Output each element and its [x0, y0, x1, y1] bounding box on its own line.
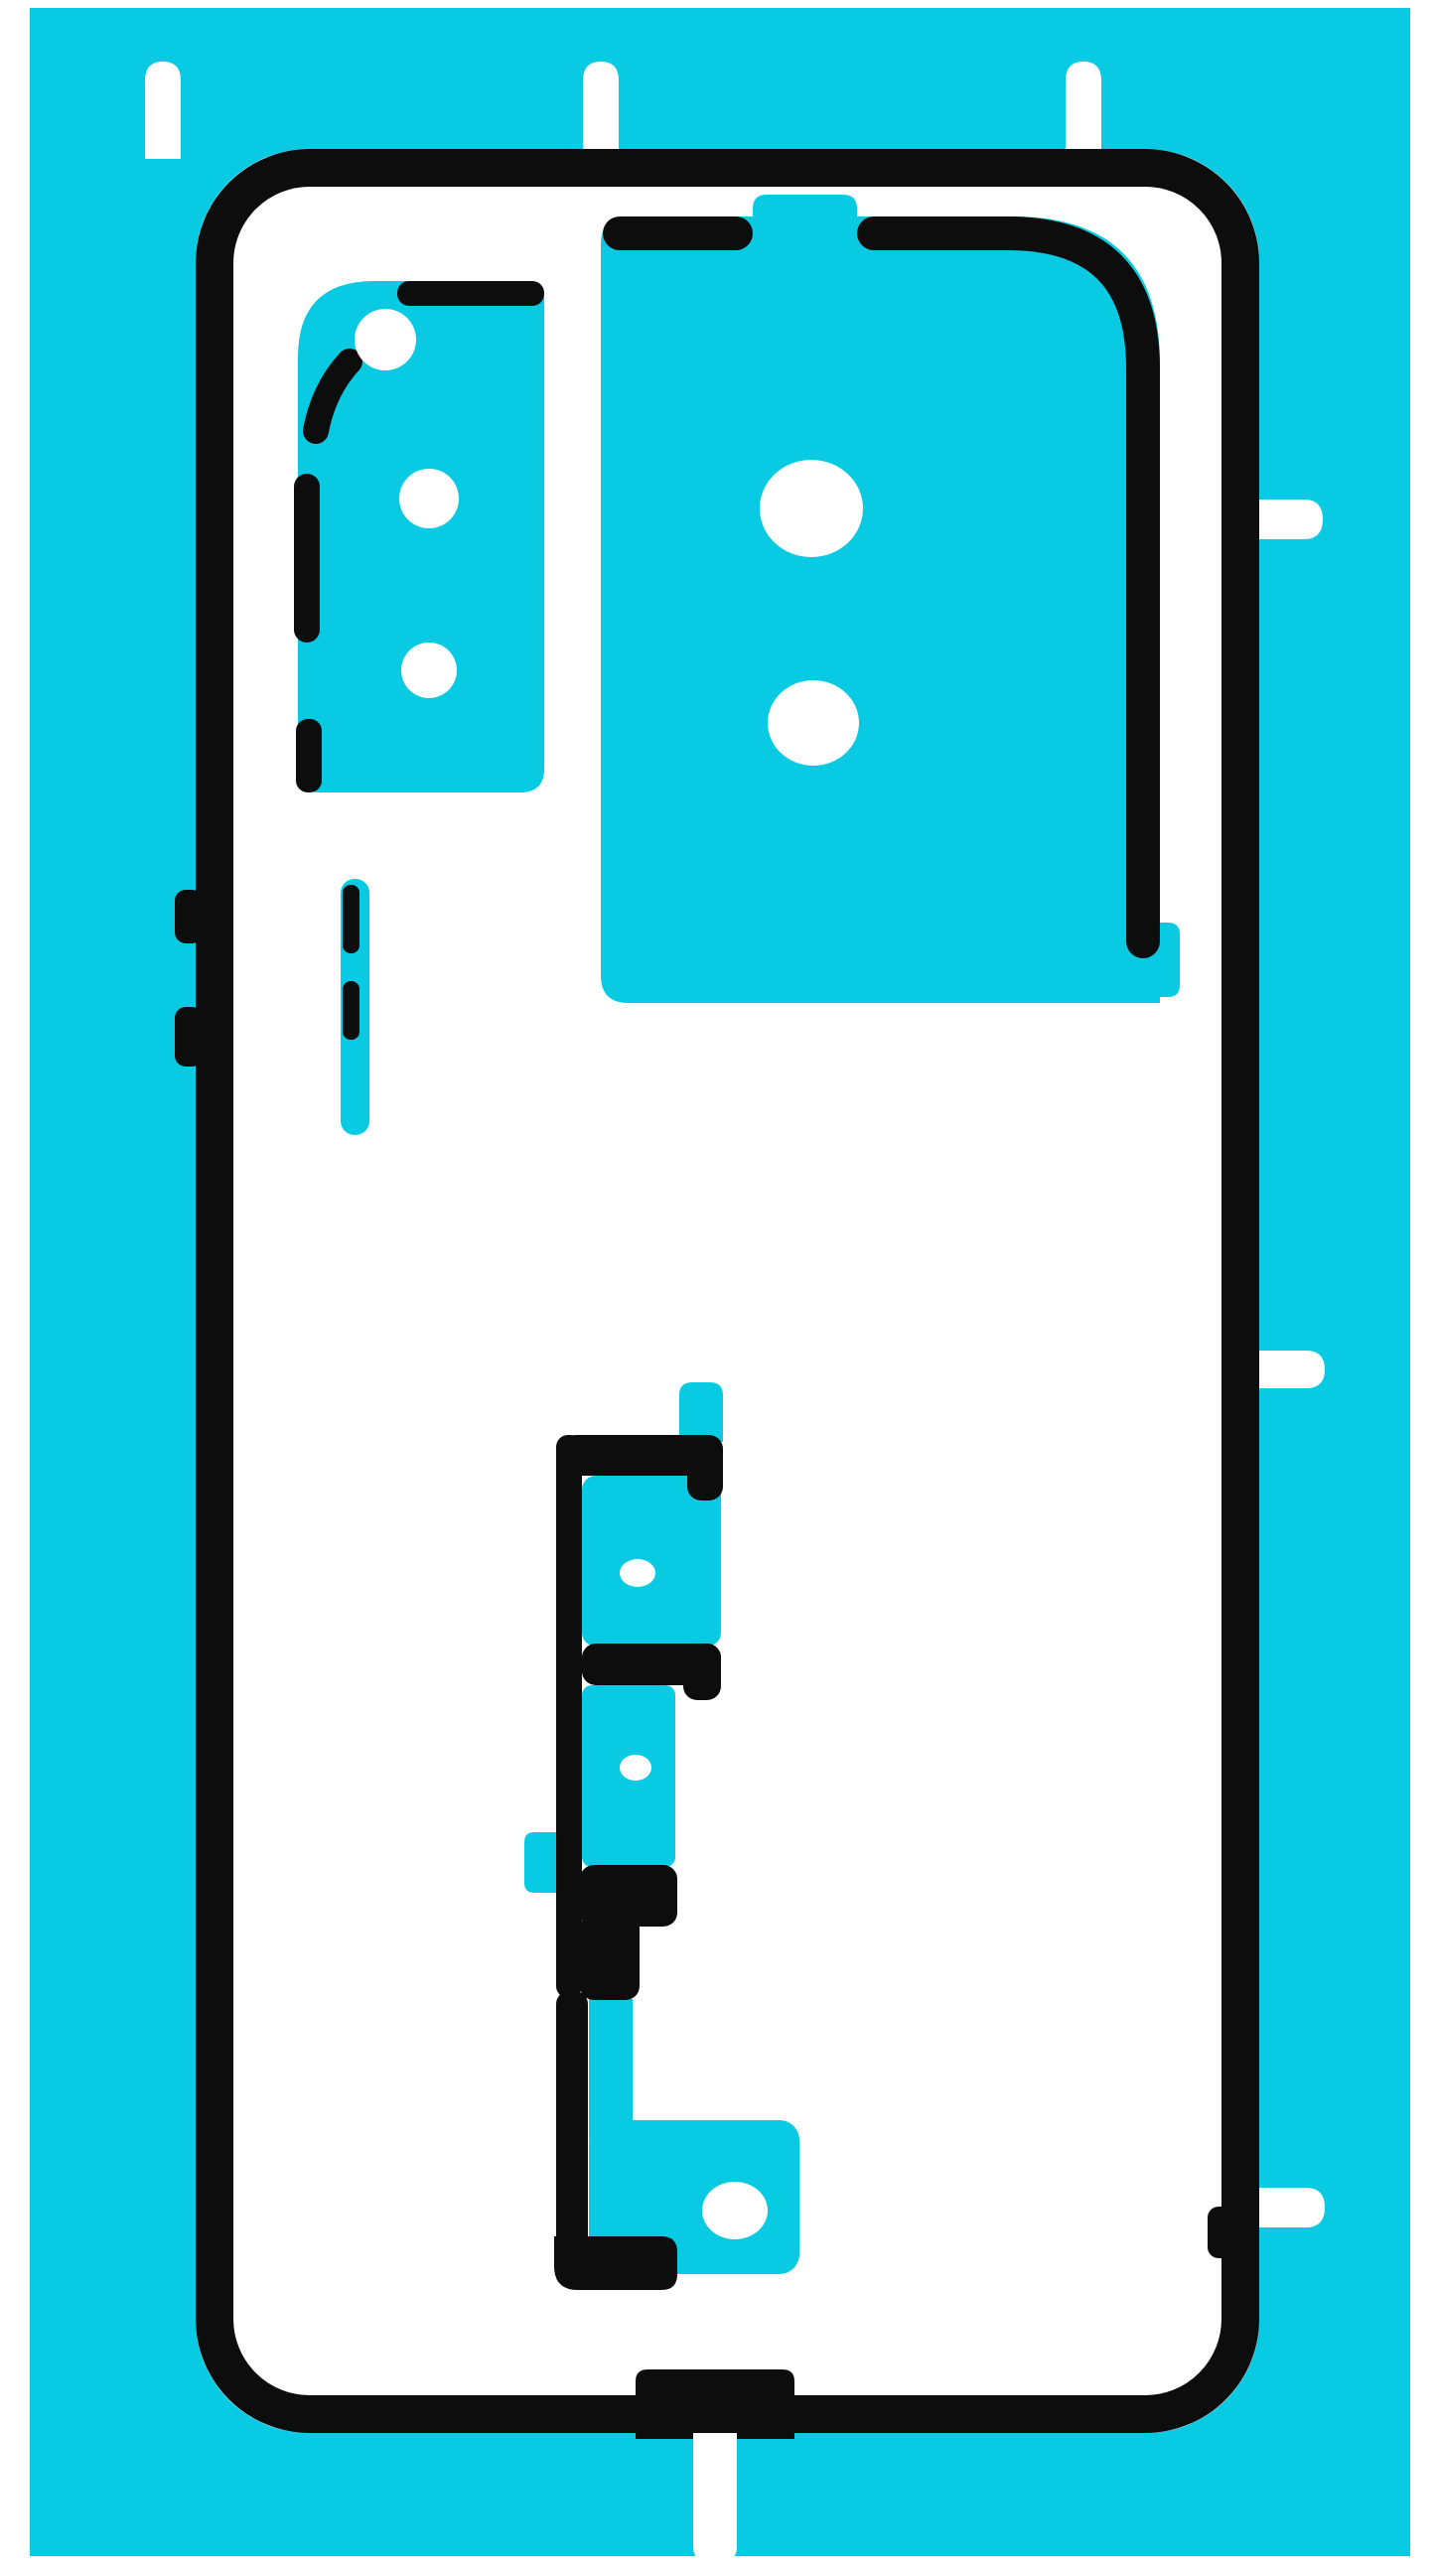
battery-top-tab	[679, 1382, 723, 1442]
battery-slab-column	[589, 1999, 633, 2138]
volume-strip-mark-2	[343, 981, 359, 1040]
battery-frame-mid-bar-hook	[683, 1644, 721, 1700]
right-pull-tab-1	[1251, 500, 1323, 539]
camera-left-lens-hole-2	[401, 643, 457, 698]
camera-left-lens-hole-1	[399, 469, 459, 528]
right-pull-tab-3	[1251, 2188, 1325, 2227]
camera-left-border-dash-1	[397, 281, 544, 306]
battery-corner-bracket	[554, 2236, 677, 2290]
battery-zigzag-block-2	[580, 1915, 640, 2000]
camera-main-lens-hole-large	[760, 460, 863, 557]
battery-panel-mid-hole	[620, 1755, 651, 1781]
camera-main-lens-hole-small	[768, 680, 859, 766]
camera-main-adhesive	[601, 216, 1160, 1003]
outline-left-bump-2	[175, 1007, 203, 1067]
camera-left-border-dash-4	[296, 719, 322, 792]
battery-left-tab	[524, 1832, 557, 1893]
volume-strip-mark-1	[343, 885, 359, 953]
battery-frame-left-bar	[556, 1435, 582, 1998]
camera-main-top-tab	[753, 195, 857, 250]
right-pull-tab-2	[1251, 1351, 1325, 1388]
battery-panel-upper	[582, 1476, 721, 1646]
top-alignment-tab-3	[1066, 62, 1101, 159]
battery-frame-top-bar-hook	[687, 1435, 723, 1501]
outline-left-bump-1	[175, 890, 203, 943]
camera-left-adhesive	[298, 281, 544, 792]
camera-left-border-dash-3	[294, 474, 320, 643]
battery-lower-bar	[556, 1991, 588, 2265]
top-alignment-tab-2	[583, 62, 619, 159]
battery-slab-hole	[702, 2182, 768, 2239]
camera-left-corner-notch	[355, 309, 416, 370]
bottom-pull-tab	[693, 2431, 737, 2562]
top-alignment-tab-1	[145, 62, 181, 159]
outline-right-jog	[1208, 2207, 1233, 2258]
product-photo	[0, 0, 1435, 2576]
battery-panel-upper-hole	[620, 1559, 655, 1587]
